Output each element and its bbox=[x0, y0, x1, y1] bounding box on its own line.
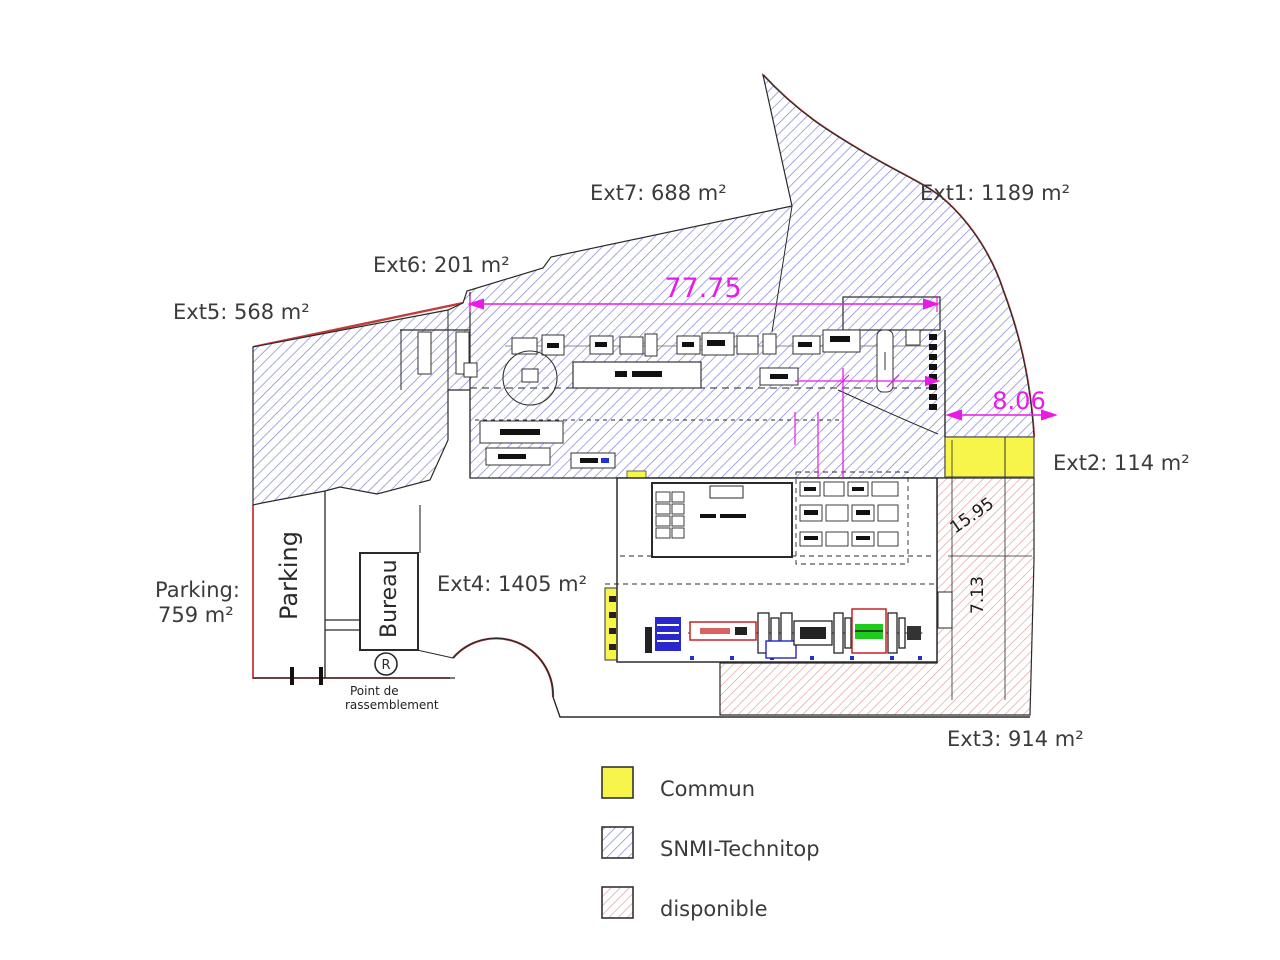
legend-label-snmi: SNMI-Technitop bbox=[660, 837, 820, 861]
label-ext5: Ext5: 568 m² bbox=[173, 300, 310, 324]
label-parking-room: Parking bbox=[275, 531, 303, 620]
legend-label-disponible: disponible bbox=[660, 897, 768, 921]
label-ext7: Ext7: 688 m² bbox=[590, 181, 727, 205]
dim-top-width: 77.75 bbox=[664, 273, 741, 304]
dim-right-width: 8.06 bbox=[992, 387, 1045, 415]
label-bureau-room: Bureau bbox=[377, 559, 402, 638]
legend-item-disponible: disponible bbox=[602, 887, 768, 921]
assembly-point-letter: R bbox=[381, 658, 390, 673]
legend-item-snmi: SNMI-Technitop bbox=[602, 827, 820, 861]
legend-swatch-snmi bbox=[602, 827, 633, 858]
legend-swatch-disponible bbox=[602, 887, 633, 918]
label-ext1: Ext1: 1189 m² bbox=[920, 181, 1070, 205]
commun-strip-right bbox=[945, 437, 1034, 477]
label-ext3: Ext3: 914 m² bbox=[947, 727, 1084, 751]
label-ext2: Ext2: 114 m² bbox=[1053, 451, 1190, 475]
label-parking-title: Parking: bbox=[155, 578, 240, 602]
legend: Commun SNMI-Technitop disponible bbox=[602, 767, 820, 921]
site-plan-page: 77.75 8.06 15.95 7.13 Ext7: 688 m² Ext1:… bbox=[0, 0, 1280, 960]
legend-swatch-commun bbox=[602, 767, 633, 798]
dim-vert-b: 7.13 bbox=[968, 576, 988, 614]
label-assembly-line2: rassemblement bbox=[345, 698, 439, 712]
legend-item-commun: Commun bbox=[602, 767, 755, 801]
label-ext6: Ext6: 201 m² bbox=[373, 253, 510, 277]
label-parking-value: 759 m² bbox=[158, 603, 234, 627]
legend-label-commun: Commun bbox=[660, 777, 755, 801]
label-assembly-line1: Point de bbox=[350, 684, 399, 698]
site-plan-drawing: 77.75 8.06 15.95 7.13 Ext7: 688 m² Ext1:… bbox=[0, 0, 1280, 960]
label-ext4: Ext4: 1405 m² bbox=[437, 572, 587, 596]
region-snmi-technitop-hatch bbox=[253, 75, 1034, 505]
